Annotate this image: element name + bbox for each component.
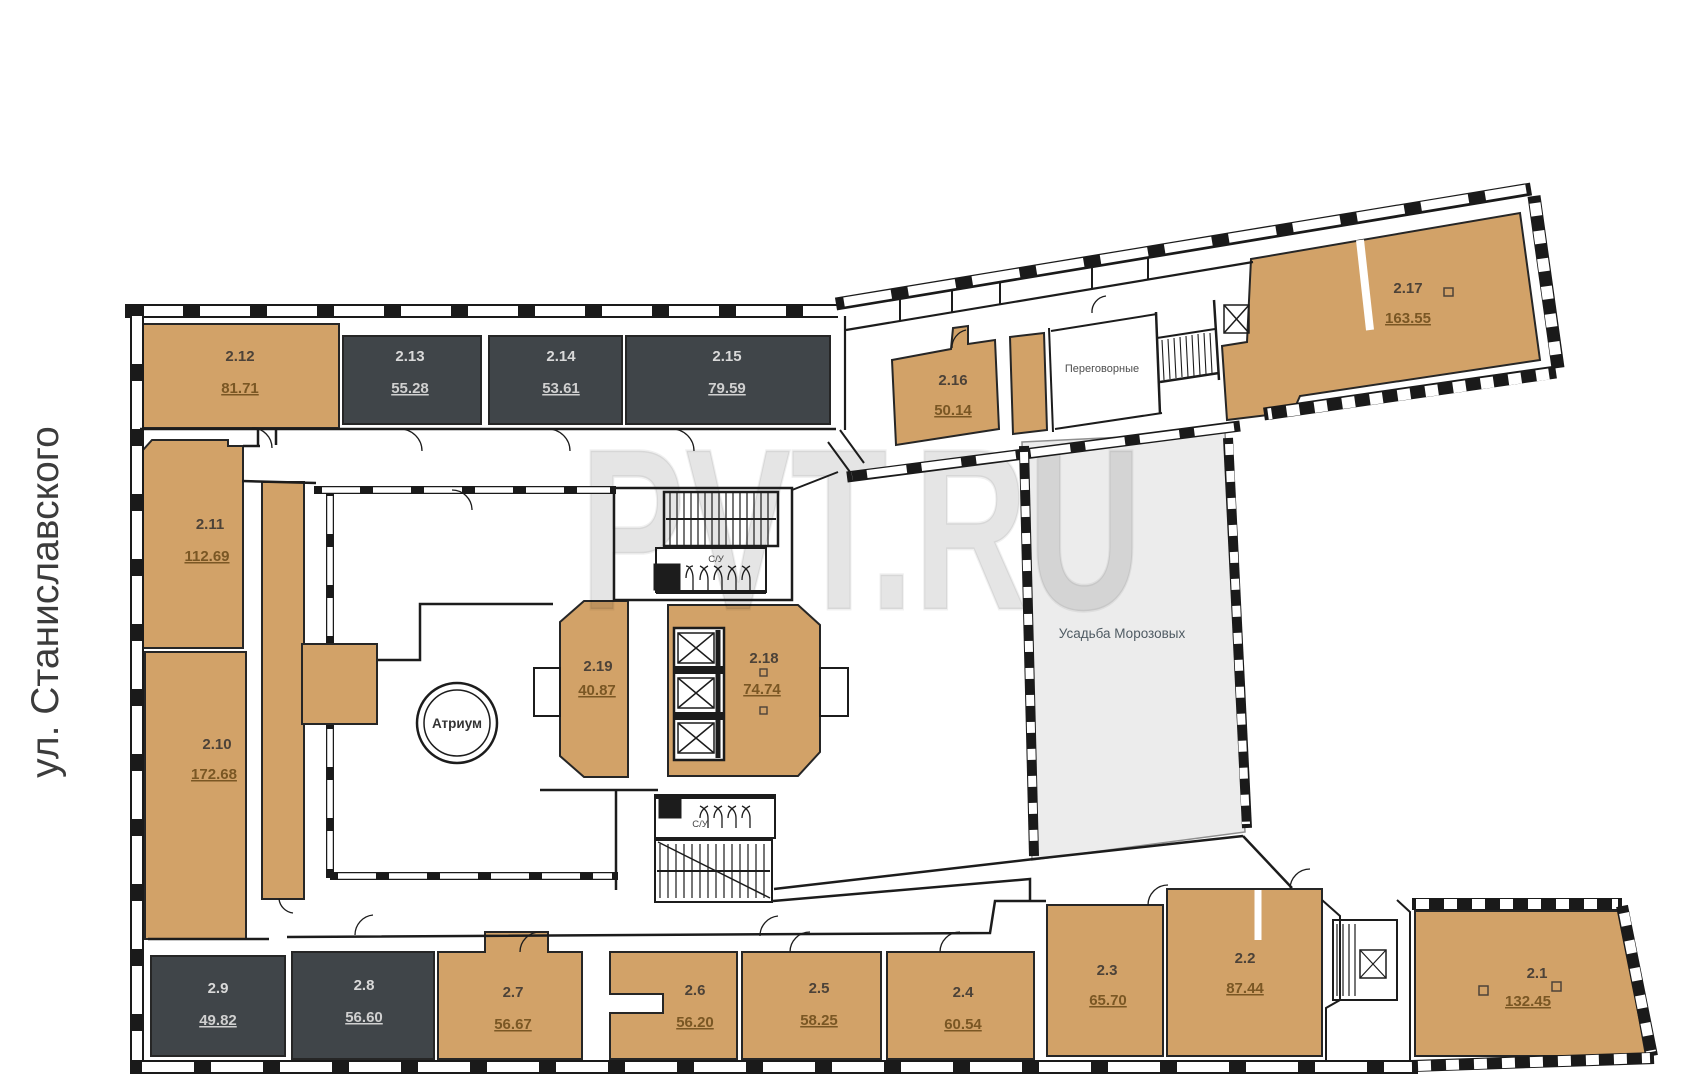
svg-text:2.2: 2.2 (1235, 950, 1256, 967)
svg-text:65.70: 65.70 (1089, 992, 1127, 1009)
svg-text:49.82: 49.82 (199, 1012, 237, 1029)
svg-text:132.45: 132.45 (1505, 993, 1551, 1010)
svg-text:112.69: 112.69 (184, 548, 229, 565)
svg-text:С/У: С/У (708, 554, 725, 565)
svg-text:Переговорные: Переговорные (1065, 363, 1139, 375)
svg-text:2.1: 2.1 (1527, 965, 1548, 982)
svg-text:2.17: 2.17 (1393, 280, 1422, 297)
svg-text:2.3: 2.3 (1097, 962, 1118, 979)
svg-text:С/У: С/У (692, 819, 709, 830)
svg-text:2.13: 2.13 (395, 348, 424, 365)
svg-text:55.28: 55.28 (391, 380, 429, 397)
svg-text:2.19: 2.19 (583, 658, 612, 675)
svg-text:56.60: 56.60 (345, 1009, 383, 1026)
svg-text:2.4: 2.4 (953, 984, 975, 1001)
svg-text:50.14: 50.14 (934, 402, 972, 419)
svg-text:60.54: 60.54 (944, 1016, 982, 1033)
svg-text:81.71: 81.71 (221, 380, 259, 397)
svg-text:2.12: 2.12 (225, 348, 254, 365)
svg-text:2.9: 2.9 (208, 980, 229, 997)
svg-text:ул. Станиславского: ул. Станиславского (24, 426, 67, 778)
svg-text:40.87: 40.87 (578, 682, 616, 699)
svg-text:2.10: 2.10 (202, 736, 231, 753)
svg-text:58.25: 58.25 (800, 1012, 838, 1029)
svg-text:Атриум: Атриум (432, 716, 482, 731)
svg-text:79.59: 79.59 (708, 380, 746, 397)
svg-text:172.68: 172.68 (191, 766, 237, 783)
svg-text:2.14: 2.14 (546, 348, 576, 365)
svg-text:2.11: 2.11 (196, 516, 224, 533)
svg-text:74.74: 74.74 (743, 681, 781, 698)
svg-text:2.5: 2.5 (809, 980, 830, 997)
svg-text:2.16: 2.16 (938, 372, 967, 389)
svg-text:56.67: 56.67 (494, 1016, 532, 1033)
svg-text:56.20: 56.20 (676, 1014, 714, 1031)
svg-text:87.44: 87.44 (1226, 980, 1264, 997)
svg-text:2.8: 2.8 (354, 977, 375, 994)
svg-text:53.61: 53.61 (542, 380, 580, 397)
svg-text:Усадьба Морозовых: Усадьба Морозовых (1059, 626, 1186, 641)
svg-text:2.7: 2.7 (503, 984, 524, 1001)
svg-text:2.18: 2.18 (749, 650, 778, 667)
svg-text:2.6: 2.6 (685, 982, 706, 999)
svg-text:163.55: 163.55 (1385, 310, 1431, 327)
svg-text:2.15: 2.15 (712, 348, 741, 365)
